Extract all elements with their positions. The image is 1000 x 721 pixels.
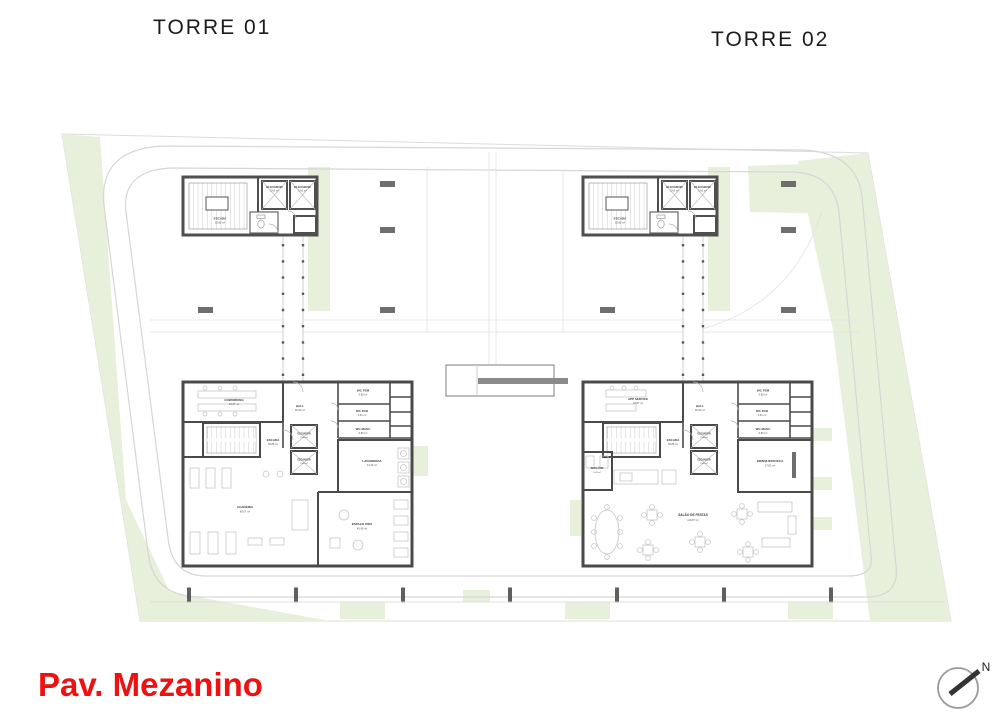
room-area-wc-fem: 6.80 m²	[359, 392, 368, 396]
room-area-coworking: 19.87 m²	[229, 402, 239, 406]
room-label-wc-masc: WC MASC	[356, 427, 371, 431]
walkway-tower2	[683, 236, 703, 382]
room-area-wc-masc: 6.80 m²	[359, 431, 368, 435]
room-label-elevador: ELEVADOR	[266, 185, 283, 189]
floor-level-title: Pav. Mezanino	[38, 666, 263, 704]
room-label-escada: ESCADA	[214, 217, 228, 221]
room-area-academia: 85.07 m²	[240, 510, 250, 514]
room-area-escada: 18.85 m²	[215, 221, 225, 225]
room-area-lavanderia: 21.40 m²	[367, 463, 377, 467]
floorplan-sheet: ELEVADOR 3.60 m² ELEVADOR 3.60 m² ESCADA…	[0, 0, 1000, 721]
north-label: N	[982, 660, 991, 674]
room-label-academia: ACADEMIA	[237, 505, 254, 509]
room-label-wc-pcd: WC PCD	[356, 409, 369, 413]
core-shaft-room	[294, 216, 316, 233]
room-area-elevador: 3.60 m²	[300, 436, 308, 439]
room-label-bercario: BERÇÁRIO	[591, 467, 604, 470]
room-label-wc-fem: WC FEM	[357, 389, 370, 393]
room-area-wc-pcd: 3.01 m²	[358, 413, 367, 417]
tower1-title: TORRE 01	[153, 16, 271, 40]
core-wc	[250, 212, 278, 233]
room-area-escada: 18.85 m²	[268, 442, 278, 446]
room-label-lavanderia: LAVANDERIA	[362, 459, 382, 463]
room-area-hall: 30.09 m²	[295, 408, 305, 412]
room-label-salao: SALÃO DE FESTAS	[678, 512, 708, 517]
room-label-coworking: COWORKING	[224, 398, 244, 402]
tower2-core	[583, 177, 717, 235]
room-label-elevador: ELEVADOR	[297, 433, 310, 436]
room-label-escada: ESCADA	[267, 438, 281, 442]
room-area-salao: 119.87 m²	[687, 518, 699, 522]
room-label-app-service: APP SERVICE	[628, 397, 648, 401]
room-area-app-service: 18.87 m²	[633, 401, 643, 405]
room-area-bercario: 5.63 m²	[593, 471, 601, 474]
room-area-elevador: 3.60 m²	[300, 462, 308, 465]
tower1-mezzanine-block: HALL 30.09 m² WC FEM 6.80 m² WC PCD 3.01…	[183, 382, 412, 566]
room-area-elevador: 3.60 m²	[298, 189, 307, 193]
room-label-espaco-kids: ESPAÇO KIDS	[352, 522, 372, 526]
room-area-espaco-kids: 45.96 m²	[357, 527, 367, 531]
tower2-mezzanine-block	[583, 382, 812, 566]
north-arrow: N	[938, 660, 990, 708]
room-label-elevador: ELEVADOR	[297, 459, 310, 462]
room-label-elevador: ELEVADOR	[294, 185, 311, 189]
toy-shelf	[792, 452, 796, 478]
room-area-brinquedoteca: 27.83 m²	[765, 464, 775, 468]
central-ramp	[446, 365, 568, 396]
walkway-tower1	[283, 236, 303, 382]
site-plan-drawing: ELEVADOR 3.60 m² ELEVADOR 3.60 m² ESCADA…	[0, 0, 1000, 721]
room-label-hall: HALL	[296, 404, 304, 408]
tower1-core: ELEVADOR 3.60 m² ELEVADOR 3.60 m² ESCADA…	[183, 177, 317, 235]
tower2-title: TORRE 02	[711, 28, 829, 52]
room-area-elevador: 3.60 m²	[270, 189, 279, 193]
room-label-brinquedoteca: BRINQUEDOTECA	[757, 459, 784, 463]
